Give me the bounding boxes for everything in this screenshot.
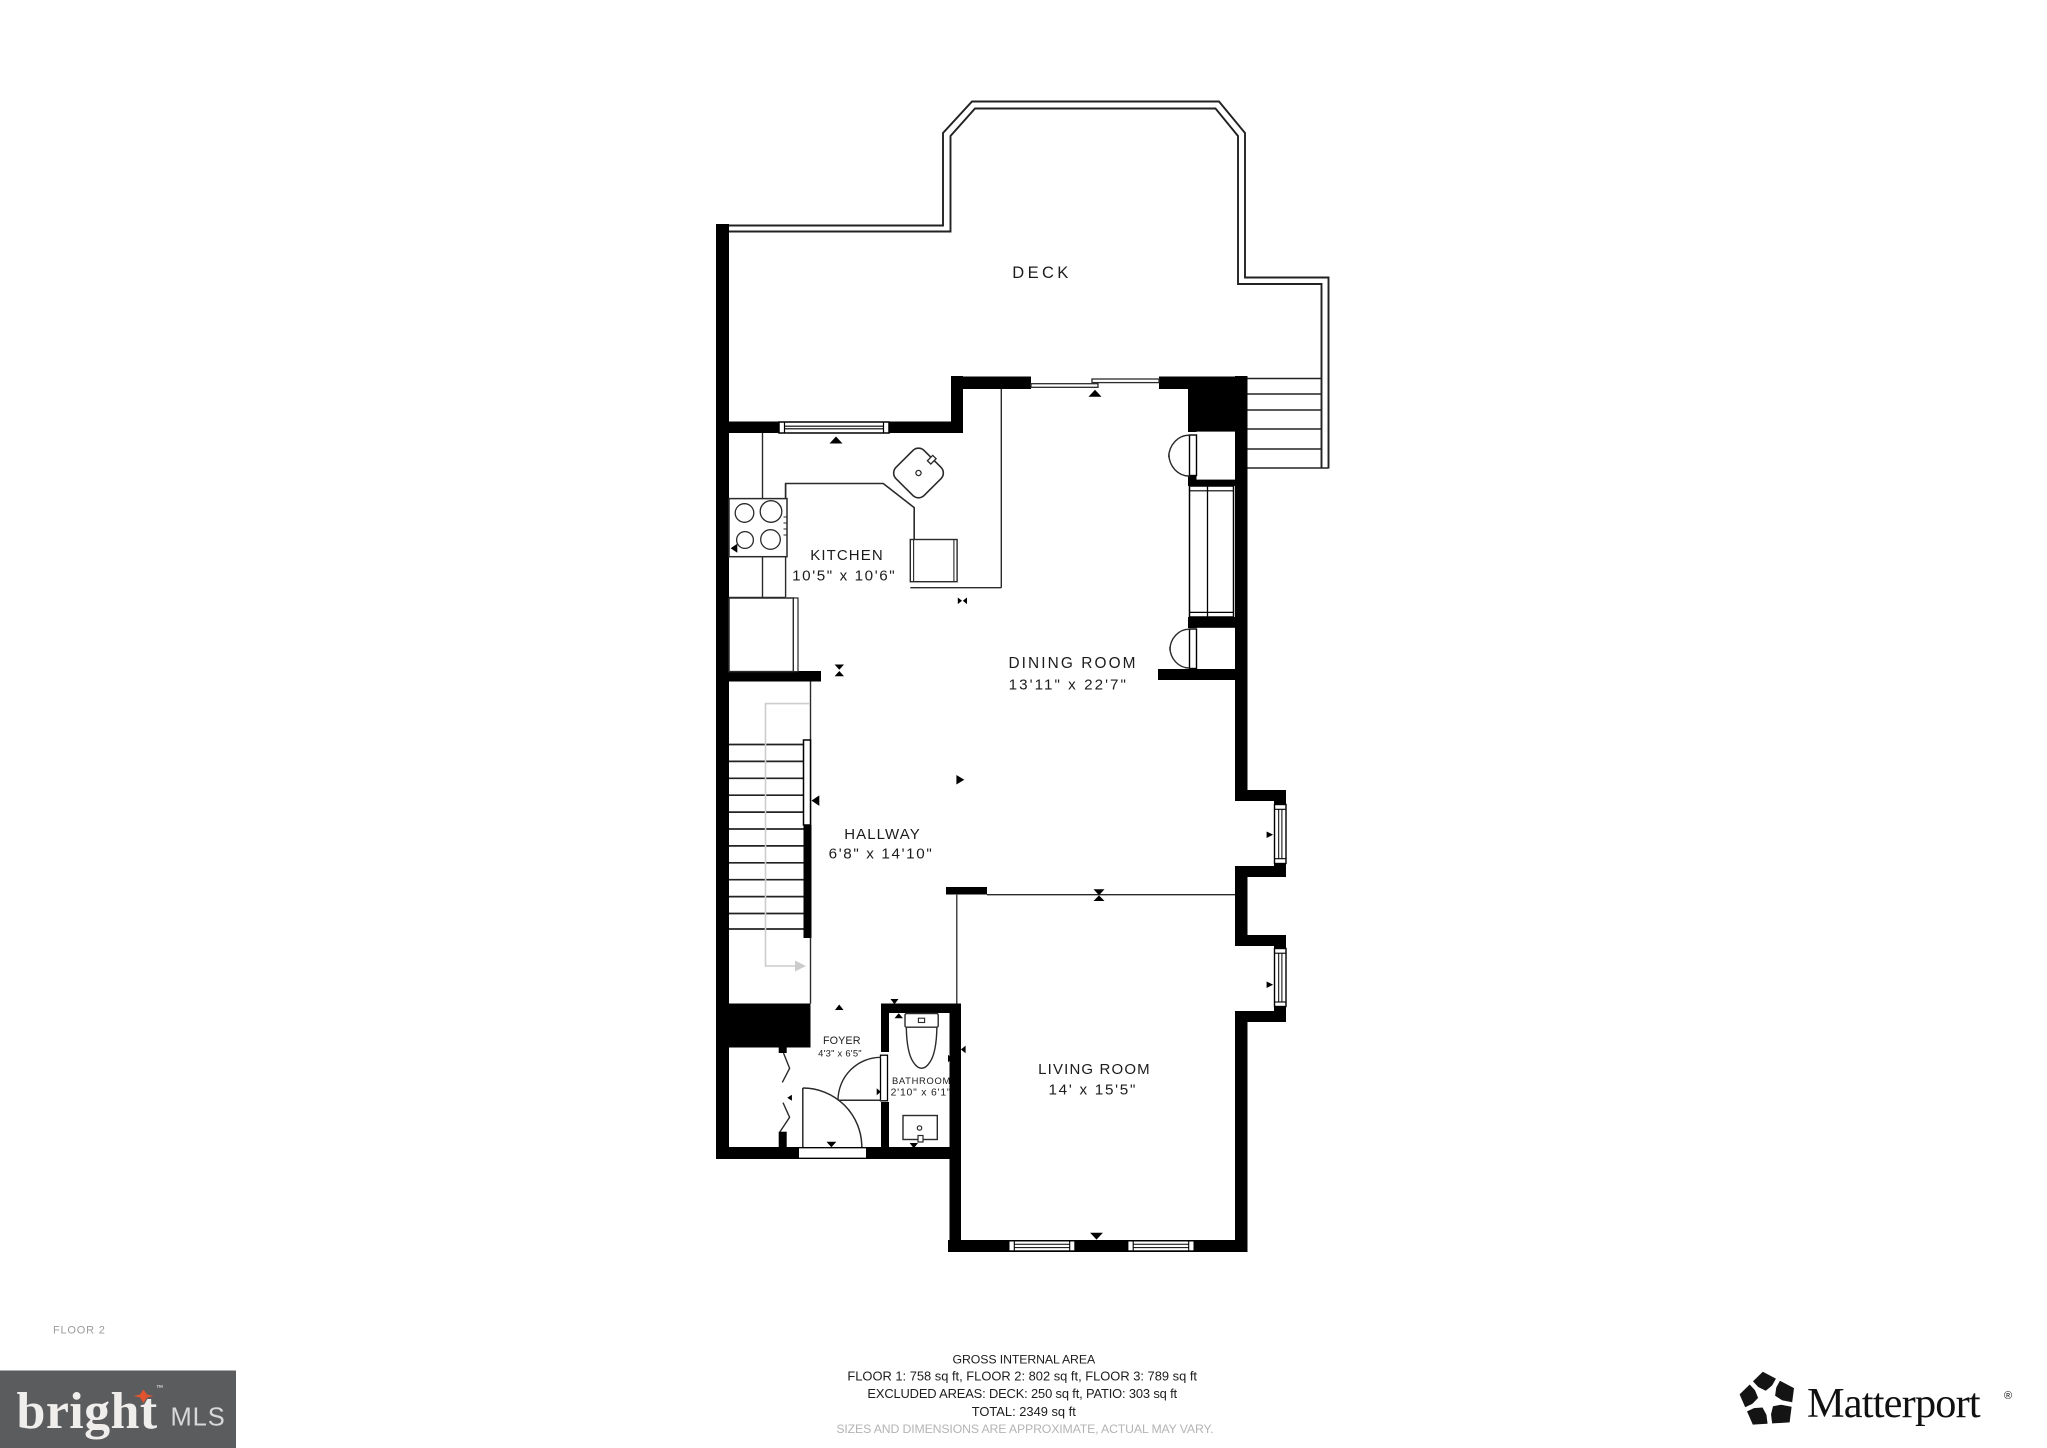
svg-text:®: ® <box>2004 1390 2012 1402</box>
svg-text:BATHROOM: BATHROOM <box>892 1075 951 1086</box>
svg-text:LIVING ROOM: LIVING ROOM <box>1038 1061 1151 1078</box>
svg-text:FOYER: FOYER <box>823 1035 861 1047</box>
svg-text:6'8" x 14'10": 6'8" x 14'10" <box>829 846 934 863</box>
svg-text:DINING ROOM: DINING ROOM <box>1008 655 1137 672</box>
svg-text:FLOOR 2: FLOOR 2 <box>53 1325 106 1337</box>
svg-text:GROSS INTERNAL AREA: GROSS INTERNAL AREA <box>953 1352 1096 1366</box>
svg-text:10'5" x 10'6": 10'5" x 10'6" <box>792 568 896 585</box>
svg-text:4'3" x 6'5": 4'3" x 6'5" <box>818 1048 862 1059</box>
svg-text:™: ™ <box>156 1383 163 1392</box>
svg-text:HALLWAY: HALLWAY <box>844 826 921 843</box>
svg-text:Matterport: Matterport <box>1807 1380 1981 1427</box>
svg-text:KITCHEN: KITCHEN <box>810 547 884 564</box>
svg-text:MLS: MLS <box>171 1404 226 1432</box>
svg-text:14' x 15'5": 14' x 15'5" <box>1048 1082 1137 1099</box>
svg-text:2'10" x 6'1": 2'10" x 6'1" <box>891 1088 952 1099</box>
svg-text:FLOOR 1: 758 sq ft, FLOOR 2: 8: FLOOR 1: 758 sq ft, FLOOR 2: 802 sq ft, … <box>847 1369 1197 1384</box>
svg-text:SIZES AND DIMENSIONS ARE APPRO: SIZES AND DIMENSIONS ARE APPROXIMATE, AC… <box>836 1422 1213 1436</box>
svg-text:TOTAL: 2349 sq ft: TOTAL: 2349 sq ft <box>972 1404 1077 1419</box>
svg-text:13'11" x 22'7": 13'11" x 22'7" <box>1009 677 1128 694</box>
svg-text:DECK: DECK <box>1012 264 1071 282</box>
svg-text:bright: bright <box>17 1383 158 1440</box>
svg-text:EXCLUDED AREAS: DECK: 250 sq f: EXCLUDED AREAS: DECK: 250 sq ft, PATIO: … <box>867 1386 1177 1401</box>
